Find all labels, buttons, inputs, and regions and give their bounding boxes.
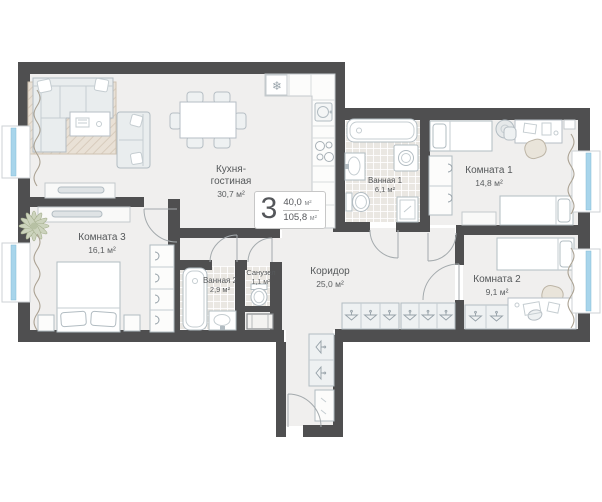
wall <box>333 62 345 232</box>
room-name: Коридор <box>301 266 359 278</box>
wall <box>276 342 286 437</box>
room-name: Комната 2 <box>460 274 534 286</box>
room-label-room1: Комната 1 14,8 м² <box>452 165 526 188</box>
apartment-number: 3 <box>261 194 278 224</box>
room-area: 25,0 м² <box>301 279 359 289</box>
wall <box>168 228 280 238</box>
room-area: 14,8 м² <box>452 178 526 188</box>
room-name: Комната 1 <box>452 165 526 177</box>
room-label-corridor: Коридор 25,0 м² <box>301 266 359 289</box>
wall <box>168 330 284 342</box>
wall <box>396 222 430 232</box>
room-area: 1,1 м² <box>242 279 280 287</box>
room-area: 6,1 м² <box>357 186 413 195</box>
room-area: 16,1 м² <box>65 245 139 255</box>
wall <box>333 335 343 437</box>
wall <box>455 235 464 265</box>
room-area: 2,9 м² <box>194 286 246 295</box>
floor-entry-hall <box>286 330 333 426</box>
room-area: 9,1 м² <box>460 287 534 297</box>
room-name: Ванная 2 <box>194 276 246 285</box>
wall <box>303 425 343 437</box>
area-divider <box>283 210 319 211</box>
wall <box>456 225 590 235</box>
wall <box>168 260 212 270</box>
room-label-bathroom2: Ванная 2 2,9 м² <box>194 276 246 295</box>
wall <box>244 306 282 312</box>
wall <box>18 330 180 342</box>
apartment-badge: 3 40,0 м² 105,8 м² <box>254 191 326 229</box>
room-name: Комната 3 <box>65 232 139 244</box>
room-name: Кухня-гостиная <box>196 164 266 188</box>
wall <box>18 62 345 74</box>
room-name: Ванная 1 <box>357 176 413 185</box>
floor-plan: ❄ <box>0 0 602 502</box>
wall <box>18 197 144 207</box>
room-label-room2: Комната 2 9,1 м² <box>460 274 534 297</box>
total-area: 105,8 м² <box>283 212 317 223</box>
living-area: 40,0 м² <box>283 197 311 208</box>
wall <box>420 108 430 232</box>
room-name: Санузел <box>242 269 280 278</box>
wall <box>168 199 180 342</box>
room-label-wc: Санузел 1,1 м² <box>242 269 280 287</box>
floor-room3 <box>30 199 170 330</box>
wall <box>455 300 464 332</box>
room-label-room3: Комната 3 16,1 м² <box>65 232 139 255</box>
floor-bathroom1 <box>345 120 420 222</box>
apartment-areas: 40,0 м² 105,8 м² <box>283 197 319 223</box>
wall <box>345 222 370 232</box>
wall <box>333 108 590 120</box>
room-label-bathroom1: Ванная 1 6,1 м² <box>357 176 413 195</box>
